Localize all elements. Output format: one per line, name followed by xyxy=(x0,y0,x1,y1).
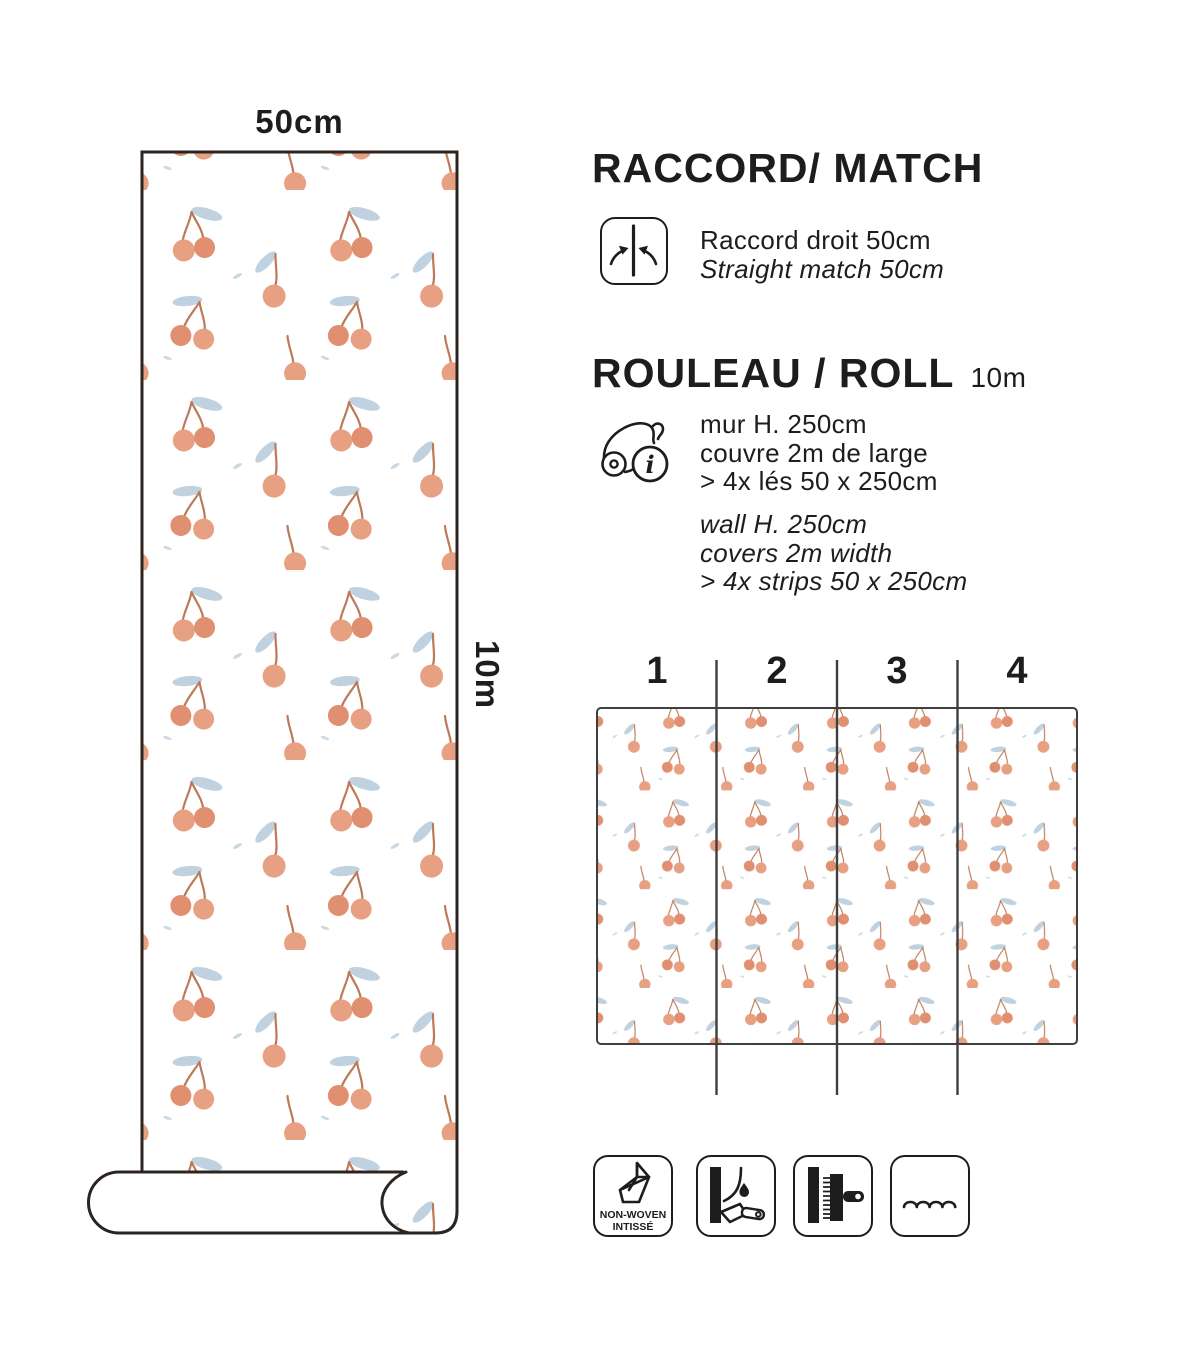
roll-fr-line: > 4x lés 50 x 250cm xyxy=(700,467,938,496)
match-description: Raccord droit 50cm Straight match 50cm xyxy=(700,226,944,283)
roll-length-badge: 10m xyxy=(970,364,1026,392)
roll-en-line: > 4x strips 50 x 250cm xyxy=(700,567,967,596)
info-i-glyph: i xyxy=(645,450,654,479)
roll-en-line: covers 2m width xyxy=(700,539,967,568)
strip-number-1: 1 xyxy=(597,650,717,693)
non-woven-line2: INTISSÉ xyxy=(595,1222,671,1234)
paste-the-wall-icon xyxy=(696,1155,776,1237)
roll-description-en: wall H. 250cm covers 2m width > 4x strip… xyxy=(700,510,967,596)
match-section-title: RACCORD/ MATCH xyxy=(592,148,983,189)
match-title-text: RACCORD/ MATCH xyxy=(592,148,983,189)
roll-fr-line: couvre 2m de large xyxy=(700,439,938,468)
strip-number-3: 3 xyxy=(837,650,957,693)
wallpaper-spec-sheet: 50cm 10m RACCORD/ MATCH Raccord droit 50… xyxy=(0,0,1200,1353)
strip-number-2: 2 xyxy=(717,650,837,693)
non-woven-line1: NON-WOVEN xyxy=(595,1210,671,1222)
roll-length-label: 10m xyxy=(468,640,506,709)
roll-fr-line: mur H. 250cm xyxy=(700,410,938,439)
roll-title-text: ROULEAU / ROLL xyxy=(592,353,954,394)
strip-numbers: 1 2 3 4 xyxy=(597,650,1077,693)
strips-layout-diagram xyxy=(597,660,1077,1095)
roll-en-line: wall H. 250cm xyxy=(700,510,967,539)
roll-width-label: 50cm xyxy=(142,103,457,141)
match-line-fr: Raccord droit 50cm xyxy=(700,226,944,255)
smoothing-spatula-icon xyxy=(793,1155,873,1237)
roll-strip-illustration xyxy=(89,152,458,1233)
roll-description-fr: mur H. 250cm couvre 2m de large > 4x lés… xyxy=(700,410,938,496)
roll-curl xyxy=(89,1172,410,1233)
roll-section-title: ROULEAU / ROLL 10m xyxy=(592,353,1026,394)
strip-number-4: 4 xyxy=(957,650,1077,693)
non-woven-label: NON-WOVEN INTISSÉ xyxy=(595,1210,671,1233)
non-woven-icon: NON-WOVEN INTISSÉ xyxy=(593,1155,673,1237)
roll-info-icon: i xyxy=(597,413,681,493)
straight-match-icon xyxy=(600,217,668,285)
match-line-en: Straight match 50cm xyxy=(700,255,944,284)
washable-icon xyxy=(890,1155,970,1237)
